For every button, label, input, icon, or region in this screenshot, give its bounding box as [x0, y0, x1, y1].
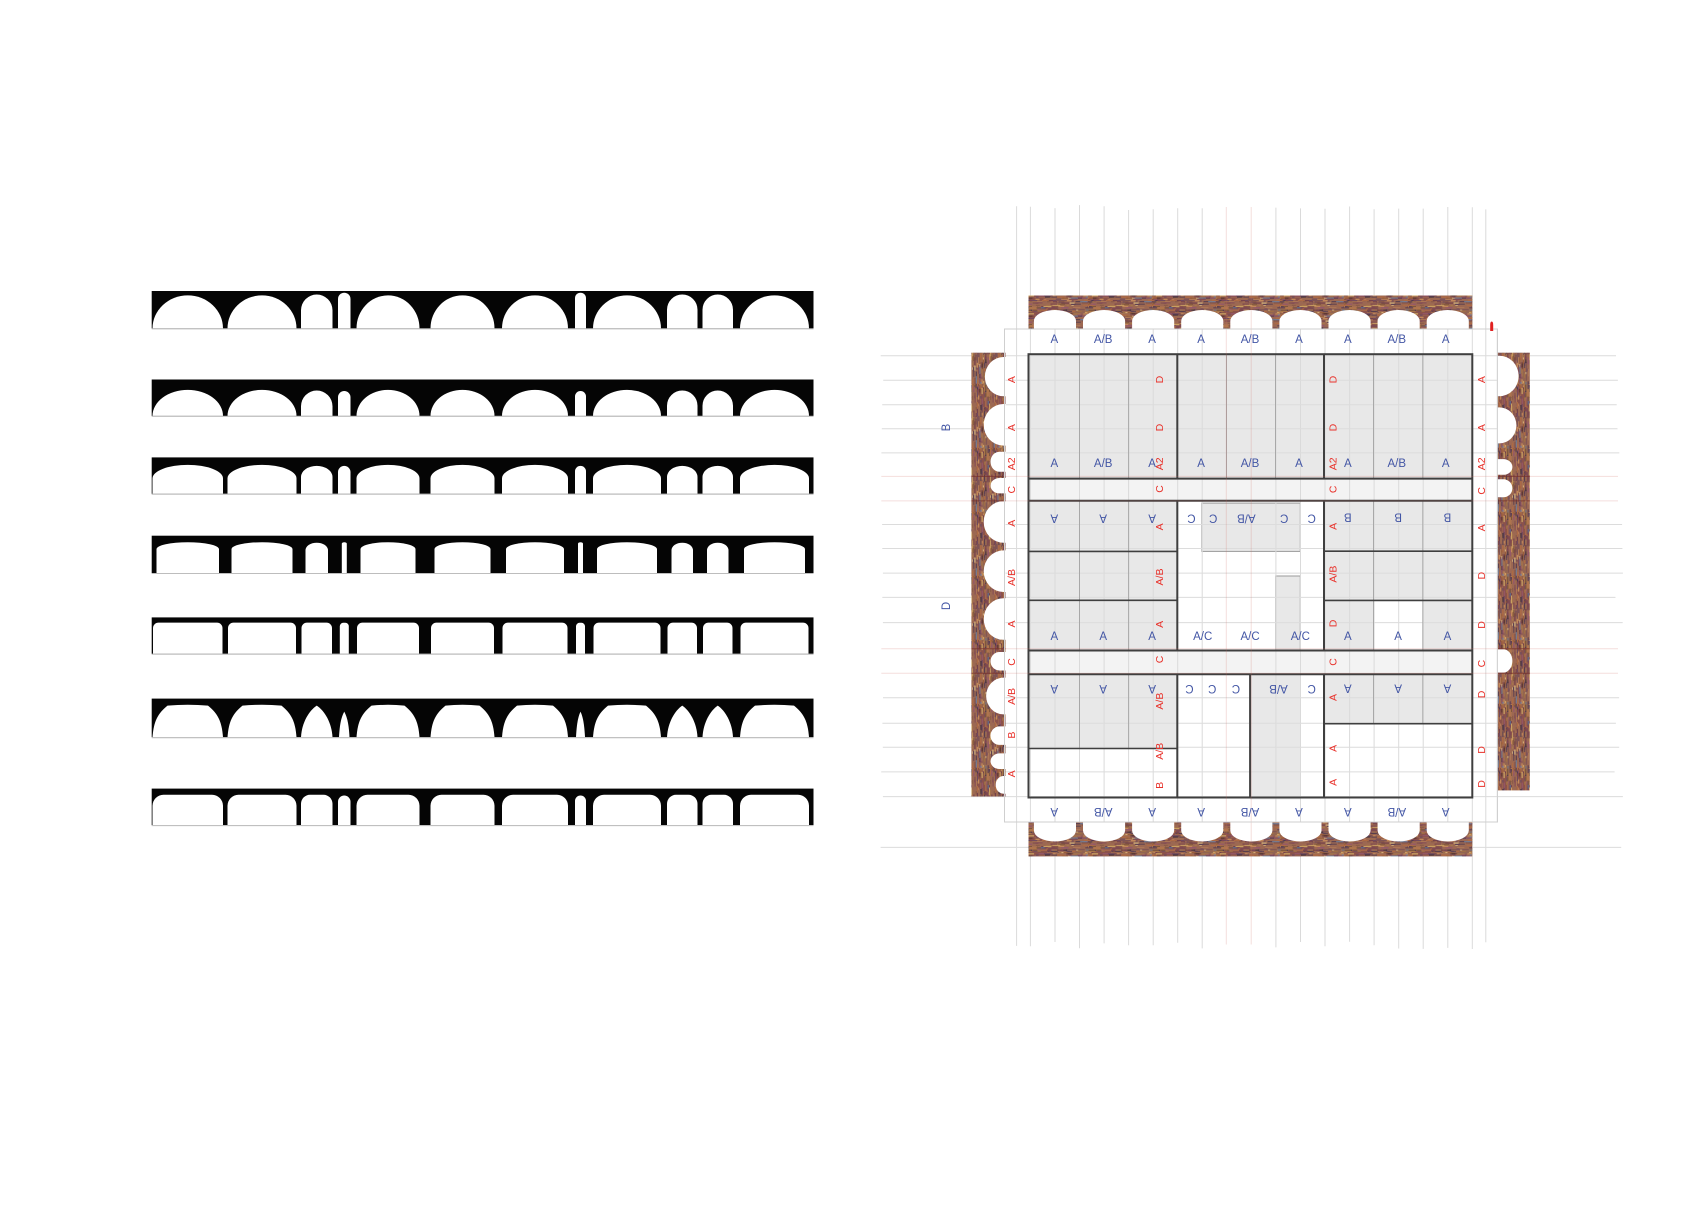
svg-text:C: C: [1006, 658, 1018, 666]
svg-text:A: A: [1328, 523, 1340, 530]
svg-text:A: A: [1476, 376, 1488, 383]
svg-text:A: A: [1328, 694, 1340, 701]
svg-text:B: B: [1394, 511, 1402, 523]
svg-text:A: A: [1050, 512, 1058, 524]
svg-text:A: A: [1197, 458, 1205, 470]
svg-text:B: B: [1006, 732, 1018, 739]
svg-text:A/B: A/B: [1241, 458, 1260, 470]
svg-text:A: A: [1442, 334, 1450, 346]
svg-text:A/B: A/B: [1241, 334, 1260, 346]
svg-text:A: A: [1050, 458, 1058, 470]
svg-text:A: A: [1476, 524, 1488, 531]
svg-text:A2: A2: [1476, 457, 1488, 470]
svg-text:C: C: [1308, 682, 1316, 694]
svg-text:A: A: [1006, 770, 1018, 777]
svg-text:A: A: [1344, 805, 1352, 817]
svg-text:A: A: [1148, 512, 1156, 524]
svg-text:A: A: [1099, 512, 1107, 524]
svg-text:D: D: [1328, 375, 1340, 383]
svg-text:A/B: A/B: [1154, 693, 1166, 710]
svg-text:D: D: [1328, 423, 1340, 431]
svg-text:D: D: [1476, 780, 1488, 788]
svg-text:C: C: [1208, 682, 1216, 694]
svg-text:A: A: [1099, 682, 1107, 694]
svg-text:A: A: [1050, 682, 1058, 694]
svg-text:C: C: [1187, 512, 1195, 524]
svg-text:A: A: [1295, 805, 1303, 817]
svg-text:A2: A2: [1328, 457, 1340, 470]
svg-text:D: D: [1154, 375, 1166, 383]
svg-text:A/B: A/B: [1240, 805, 1259, 817]
svg-text:D: D: [1476, 746, 1488, 754]
svg-text:A: A: [1394, 631, 1402, 643]
svg-text:B: B: [1344, 511, 1352, 523]
svg-text:A/B: A/B: [1269, 682, 1288, 694]
svg-text:A: A: [1394, 682, 1402, 694]
svg-text:D: D: [1328, 619, 1340, 627]
svg-text:A: A: [1050, 631, 1058, 643]
svg-text:A/B: A/B: [1006, 569, 1018, 586]
svg-text:D: D: [1476, 571, 1488, 579]
svg-text:C: C: [1154, 485, 1166, 493]
svg-text:A/B: A/B: [1388, 334, 1407, 346]
svg-text:A: A: [1476, 424, 1488, 431]
svg-text:A/B: A/B: [1328, 566, 1340, 583]
svg-text:D: D: [941, 602, 953, 610]
svg-text:C: C: [1154, 655, 1166, 663]
svg-text:A: A: [1099, 631, 1107, 643]
svg-text:D: D: [1154, 423, 1166, 431]
svg-text:D: D: [1476, 621, 1488, 629]
svg-text:C: C: [1280, 512, 1288, 524]
svg-text:A/C: A/C: [1241, 631, 1260, 643]
svg-text:A/B: A/B: [1094, 458, 1113, 470]
svg-text:A: A: [1328, 745, 1340, 752]
svg-text:D: D: [1476, 690, 1488, 698]
svg-text:A: A: [1344, 458, 1352, 470]
svg-text:A: A: [1442, 805, 1450, 817]
svg-text:A: A: [1295, 334, 1303, 346]
svg-text:A: A: [1295, 458, 1303, 470]
svg-text:B: B: [1154, 782, 1166, 789]
svg-text:A: A: [1050, 805, 1058, 817]
svg-text:C: C: [1328, 485, 1340, 493]
svg-text:A/C: A/C: [1193, 631, 1212, 643]
svg-text:A: A: [1148, 631, 1156, 643]
svg-text:A/B: A/B: [1237, 512, 1256, 524]
svg-text:A: A: [1050, 334, 1058, 346]
svg-text:A: A: [1443, 682, 1451, 694]
svg-text:C: C: [1209, 512, 1217, 524]
svg-text:A: A: [1006, 620, 1018, 627]
svg-text:A: A: [1444, 631, 1452, 643]
svg-text:A/B: A/B: [1094, 334, 1113, 346]
svg-text:C: C: [1006, 485, 1018, 493]
svg-text:A: A: [1006, 520, 1018, 527]
svg-text:A/B: A/B: [1154, 569, 1166, 586]
svg-text:A/B: A/B: [1388, 458, 1407, 470]
svg-text:A/B: A/B: [1387, 805, 1406, 817]
svg-text:A: A: [1197, 805, 1205, 817]
svg-text:B: B: [941, 423, 953, 431]
svg-text:A: A: [1344, 334, 1352, 346]
svg-text:C: C: [1476, 659, 1488, 667]
svg-text:A: A: [1344, 682, 1352, 694]
svg-text:C: C: [1328, 658, 1340, 666]
svg-text:A2: A2: [1154, 457, 1166, 470]
svg-text:A: A: [1148, 682, 1156, 694]
svg-text:C: C: [1308, 512, 1316, 524]
svg-text:B: B: [1443, 511, 1451, 523]
svg-text:A: A: [1006, 376, 1018, 383]
svg-text:C: C: [1232, 682, 1240, 694]
svg-text:C: C: [1476, 487, 1488, 495]
svg-text:A: A: [1442, 458, 1450, 470]
svg-text:A: A: [1148, 334, 1156, 346]
svg-text:A: A: [1006, 424, 1018, 431]
svg-text:A/C: A/C: [1291, 631, 1310, 643]
svg-text:A: A: [1154, 523, 1166, 530]
svg-text:A/B: A/B: [1006, 688, 1018, 705]
svg-text:A/B: A/B: [1094, 805, 1113, 817]
svg-text:A: A: [1328, 779, 1340, 786]
svg-text:A: A: [1197, 334, 1205, 346]
svg-text:A2: A2: [1006, 457, 1018, 470]
svg-text:A: A: [1148, 805, 1156, 817]
svg-text:C: C: [1185, 682, 1193, 694]
svg-text:A/B: A/B: [1154, 743, 1166, 760]
svg-text:A: A: [1344, 631, 1352, 643]
svg-text:A: A: [1154, 621, 1166, 628]
